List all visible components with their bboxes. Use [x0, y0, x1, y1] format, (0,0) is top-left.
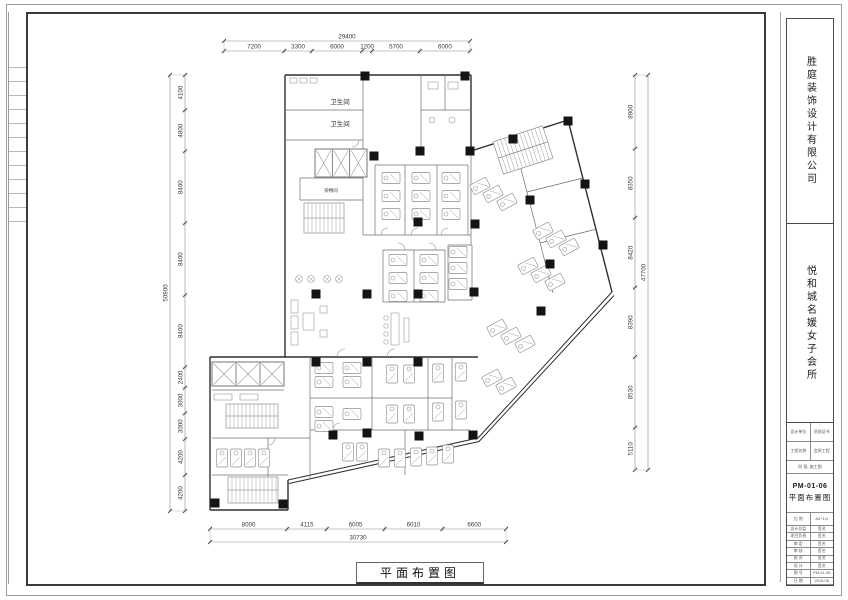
column — [414, 290, 423, 299]
door-arc — [398, 243, 405, 250]
dim-label: 30730 — [349, 535, 367, 542]
tb-cell: 审 定 — [787, 541, 810, 547]
dim-label: 5110 — [628, 442, 635, 456]
elevator-bank — [315, 149, 367, 177]
column — [526, 196, 535, 205]
furniture — [291, 332, 298, 345]
tb-sig-row: 审 定签名 — [787, 541, 833, 548]
column — [414, 218, 423, 227]
column — [363, 358, 372, 367]
dimensions-layer: 7200330060001200570060002940041004800840… — [163, 34, 651, 545]
tb-drawing-id-box: PM-01-06 平面布置图 — [787, 474, 833, 513]
massage-bed — [382, 173, 400, 184]
column — [363, 429, 372, 438]
furniture — [240, 394, 258, 400]
massage-bed — [420, 273, 438, 284]
massage-bed — [389, 291, 407, 302]
dim-label: 4200 — [178, 486, 185, 500]
column — [564, 117, 573, 126]
dim-label: 8000 — [242, 522, 256, 529]
tb-cell: 签名 — [810, 563, 834, 569]
tb-sig-row: 审 核签名 — [787, 548, 833, 555]
column — [415, 432, 424, 441]
dim-label: 6600 — [467, 522, 481, 529]
door-arc — [387, 349, 395, 357]
tb-sig-row: 图 号PM-01-06 — [787, 570, 833, 577]
sheet-title: 平面布置图 — [356, 562, 484, 584]
tb-cell: 资质证书 — [810, 423, 834, 441]
tb-cell: 设计单位 — [787, 423, 810, 441]
massage-bed — [442, 173, 460, 184]
tb-row-2: 工程名称 会所工程 — [787, 442, 833, 461]
tb-sig-row: 校 对签名 — [787, 556, 833, 563]
furniture — [303, 313, 314, 330]
dim-label: 8400 — [178, 252, 185, 266]
dim-label: 2400 — [178, 370, 185, 384]
massage-bed — [443, 445, 454, 463]
dim-label: 50900 — [163, 284, 170, 302]
column — [581, 180, 590, 189]
chair-symbol — [336, 276, 343, 283]
massage-bed — [412, 191, 430, 202]
tb-sig-row: 设计总监签名 — [787, 526, 833, 533]
stair — [493, 126, 553, 174]
column — [461, 72, 470, 81]
column — [537, 307, 546, 316]
tb-cell: 签名 — [810, 533, 834, 539]
massage-bed — [442, 191, 460, 202]
furniture — [291, 316, 298, 329]
furniture — [320, 330, 327, 337]
tb-cell: 比 例 — [787, 513, 810, 525]
dim-label: 5700 — [389, 44, 403, 51]
elevator-bank — [212, 362, 284, 386]
drawing-name: 平面布置图 — [789, 492, 832, 503]
dim-label: 3000 — [178, 419, 185, 433]
dim-label: 杂物间 — [324, 187, 338, 194]
massage-bed — [412, 173, 430, 184]
company-name: 胜庭装饰设计有限公司 — [803, 56, 818, 186]
massage-bed — [382, 209, 400, 220]
dim-label: 4115 — [300, 522, 314, 529]
massage-bed — [404, 405, 415, 423]
massage-bed — [404, 365, 415, 383]
massage-bed — [449, 247, 467, 258]
dim-label: 6000 — [330, 44, 344, 51]
dim-label: 卫生间 — [330, 97, 350, 106]
massage-bed — [245, 449, 256, 467]
massage-bed — [456, 363, 467, 381]
column — [416, 147, 425, 156]
tb-cell: 2016.06 — [810, 578, 834, 584]
tb-cell: 审 核 — [787, 548, 810, 554]
tb-cell: 工程名称 — [787, 442, 810, 460]
massage-bed — [442, 209, 460, 220]
door-arc — [429, 243, 436, 250]
tb-row-scale: 比 例 A2+1/4 — [787, 513, 833, 526]
dim-label: 4200 — [178, 450, 185, 464]
massage-bed — [395, 449, 406, 467]
chair-symbol — [296, 276, 303, 283]
massage-bed — [343, 363, 361, 374]
massage-bed — [315, 421, 333, 432]
massage-bed — [387, 405, 398, 423]
massage-bed — [456, 401, 467, 419]
column — [361, 72, 370, 81]
dim-label: 4100 — [178, 85, 185, 99]
drawing-number: PM-01-06 — [793, 483, 828, 490]
furniture — [300, 78, 307, 83]
dim-label: 8420 — [628, 245, 635, 259]
furniture — [428, 82, 438, 89]
fixture — [384, 340, 388, 344]
furniture — [214, 394, 232, 400]
column — [471, 220, 480, 229]
furniture — [404, 318, 409, 342]
massage-bed — [315, 407, 333, 418]
massage-bed — [449, 263, 467, 274]
tb-cell: 阶 段: 施工图 — [787, 461, 833, 473]
titleblock-divider-line — [780, 12, 781, 582]
fixture — [449, 117, 455, 123]
dim-label: 1200 — [360, 44, 374, 51]
door-arc — [337, 349, 345, 357]
massage-bed — [387, 365, 398, 383]
massage-bed — [427, 447, 438, 465]
massage-bed — [433, 403, 444, 421]
floor-plan-svg: 卫生间卫生间杂物间7200330060001200570060002940041… — [0, 0, 848, 600]
furniture — [290, 78, 297, 83]
massage-bed — [357, 443, 368, 461]
column — [329, 431, 338, 440]
tb-cell: 签名 — [810, 526, 834, 532]
massage-bed — [420, 291, 438, 302]
titleblock-project-box: 悦和城名媛女子会所 — [787, 224, 833, 423]
dim-label: 卫生间 — [330, 119, 350, 128]
tb-cell: 图 号 — [787, 570, 810, 576]
titleblock-company-box: 胜庭装饰设计有限公司 — [787, 19, 833, 224]
massage-bed — [411, 448, 422, 466]
dim-label: 8350 — [628, 176, 635, 190]
tb-cell: 项目负责 — [787, 533, 810, 539]
dim-label: 3300 — [291, 44, 305, 51]
column — [509, 135, 518, 144]
column — [414, 358, 423, 367]
fixture — [384, 332, 388, 336]
door-arc — [381, 228, 388, 235]
dim-label: 47700 — [641, 263, 648, 281]
stair — [304, 203, 344, 233]
room-labels-layer: 卫生间卫生间杂物间 — [324, 97, 350, 194]
massage-bed — [217, 449, 228, 467]
massage-bed — [343, 409, 361, 420]
fixture — [384, 316, 388, 320]
column — [279, 500, 288, 509]
column — [469, 431, 478, 440]
dim-label: 8900 — [628, 104, 635, 118]
project-name: 悦和城名媛女子会所 — [803, 265, 818, 382]
massage-bed — [343, 377, 361, 388]
tb-row-3: 阶 段: 施工图 — [787, 461, 833, 474]
door-arc — [333, 423, 340, 430]
door-arc — [411, 228, 418, 235]
door-arc — [268, 438, 275, 445]
tb-cell: 校 对 — [787, 556, 810, 562]
column — [470, 288, 479, 297]
column — [370, 152, 379, 161]
columns-layer — [211, 72, 608, 509]
furniture — [448, 82, 458, 89]
titleblock: 胜庭装饰设计有限公司 悦和城名媛女子会所 设计单位 资质证书 工程名称 会所工程… — [786, 18, 834, 586]
massage-bed — [420, 255, 438, 266]
column — [363, 290, 372, 299]
stair — [228, 477, 278, 503]
tb-cell: 签名 — [810, 548, 834, 554]
tb-cell: PM-01-06 — [810, 570, 834, 576]
sheet-title-text: 平面布置图 — [380, 564, 460, 581]
column — [312, 290, 321, 299]
massage-bed — [315, 377, 333, 388]
tb-signature-rows: 设计总监签名项目负责签名审 定签名审 核签名校 对签名设 计签名图 号PM-01… — [787, 526, 833, 585]
column — [466, 147, 475, 156]
tb-cell: 签名 — [810, 541, 834, 547]
tb-sig-row: 项目负责签名 — [787, 533, 833, 540]
massage-bed — [449, 279, 467, 290]
massage-bed — [389, 255, 407, 266]
massage-bed — [389, 273, 407, 284]
massage-bed — [343, 443, 354, 461]
dim-label: 3000 — [178, 393, 185, 407]
massage-bed — [379, 449, 390, 467]
tb-sig-row: 日 期2016.06 — [787, 578, 833, 585]
fixture — [384, 324, 388, 328]
fixture — [429, 117, 435, 123]
door-arc — [441, 228, 448, 235]
dim-label: 8390 — [628, 315, 635, 329]
massage-bed — [382, 191, 400, 202]
dim-label: 29400 — [338, 34, 356, 41]
column — [211, 499, 220, 508]
dim-label: 8400 — [178, 324, 185, 338]
chair-symbol — [324, 276, 331, 283]
tb-row-1: 设计单位 资质证书 — [787, 423, 833, 442]
massage-bed — [231, 449, 242, 467]
column — [546, 260, 555, 269]
tb-cell: 会所工程 — [810, 442, 834, 460]
column — [599, 241, 608, 250]
column — [312, 358, 321, 367]
tb-sig-row: 设 计签名 — [787, 563, 833, 570]
dim-label: 8400 — [178, 180, 185, 194]
tb-cell: 日 期 — [787, 578, 810, 584]
dim-label: 6010 — [407, 522, 421, 529]
furniture — [391, 313, 399, 345]
tb-cell: A2+1/4 — [810, 513, 834, 525]
stair — [226, 404, 278, 428]
furniture — [310, 78, 317, 83]
dim-label: 8530 — [628, 385, 635, 399]
tb-cell: 设计总监 — [787, 526, 810, 532]
tb-cell: 签名 — [810, 556, 834, 562]
massage-bed — [259, 449, 270, 467]
titleblock-table: 设计单位 资质证书 工程名称 会所工程 阶 段: 施工图 PM-01-06 平面… — [787, 423, 833, 585]
chair-symbol — [308, 276, 315, 283]
dim-label: 4800 — [178, 123, 185, 137]
furniture — [320, 306, 327, 313]
furniture — [291, 300, 298, 313]
dim-label: 6000 — [438, 44, 452, 51]
dim-label: 6005 — [349, 522, 363, 529]
massage-bed — [433, 364, 444, 382]
tb-cell: 设 计 — [787, 563, 810, 569]
dim-label: 7200 — [247, 44, 261, 51]
elevators-layer — [212, 149, 367, 386]
door-arc — [352, 140, 359, 147]
